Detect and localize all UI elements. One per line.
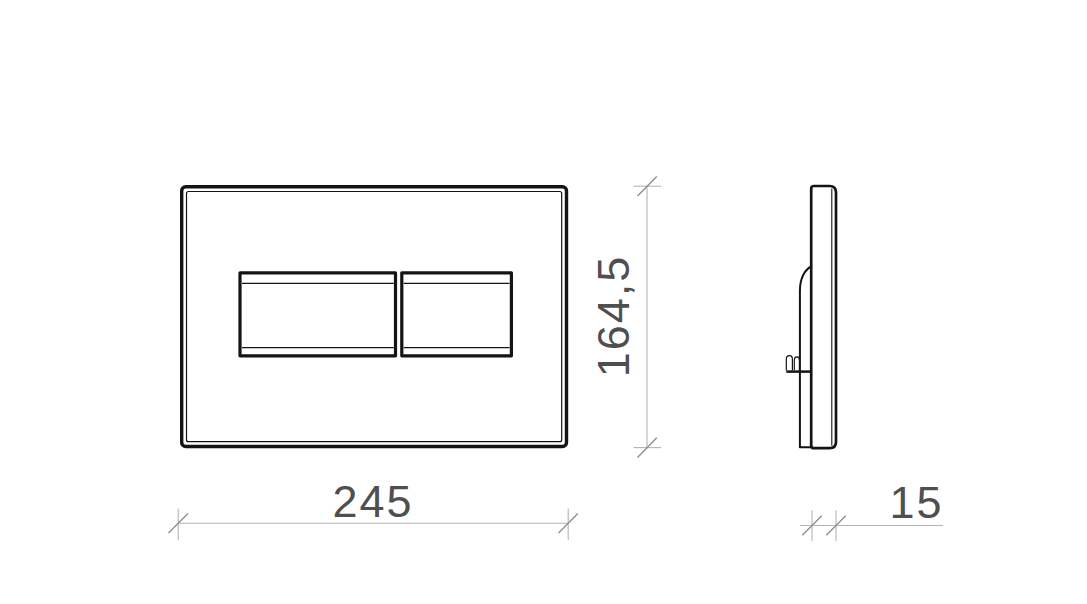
depth-dimension-label: 15 <box>864 480 969 525</box>
front-view <box>182 187 567 447</box>
height-dimension-label: 164,5 <box>587 205 639 427</box>
width-dimension-label: 245 <box>273 479 473 524</box>
mounting-clip-prongs <box>786 356 799 371</box>
side-view <box>786 186 836 448</box>
part-outlines <box>182 186 836 448</box>
side-mechanism-housing <box>800 267 811 448</box>
drawing-canvas: 245 164,5 15 <box>0 0 1087 604</box>
